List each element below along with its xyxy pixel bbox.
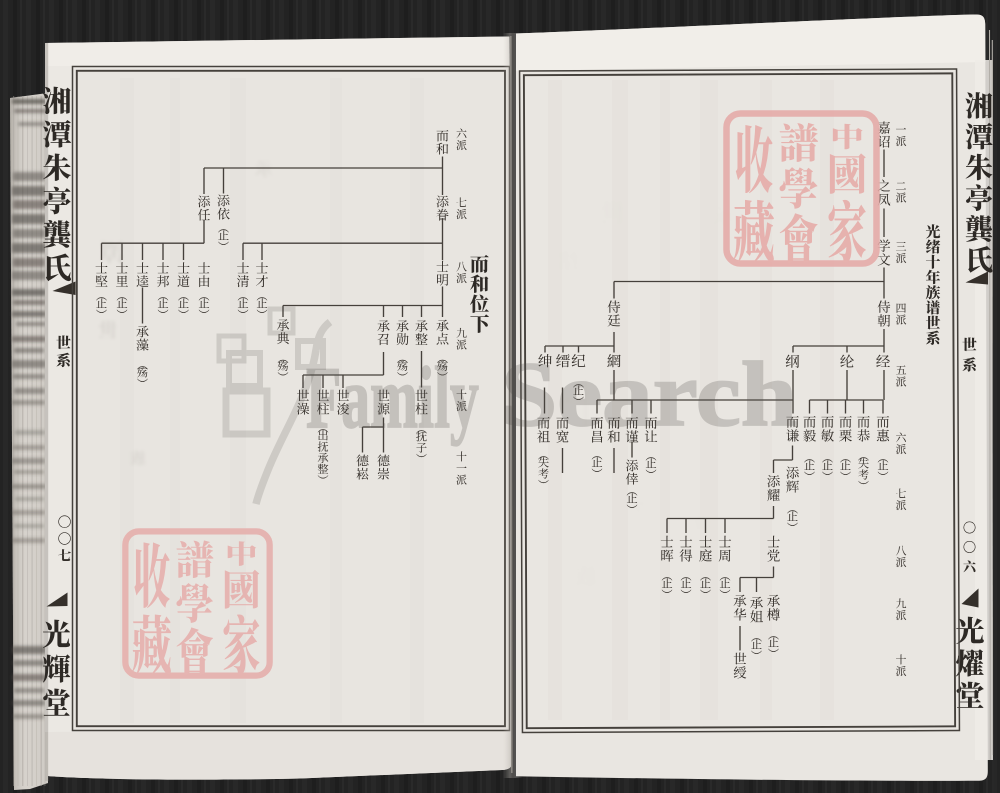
svg-text:Search: Search bbox=[501, 343, 797, 445]
svg-text:Family: Family bbox=[306, 350, 479, 447]
